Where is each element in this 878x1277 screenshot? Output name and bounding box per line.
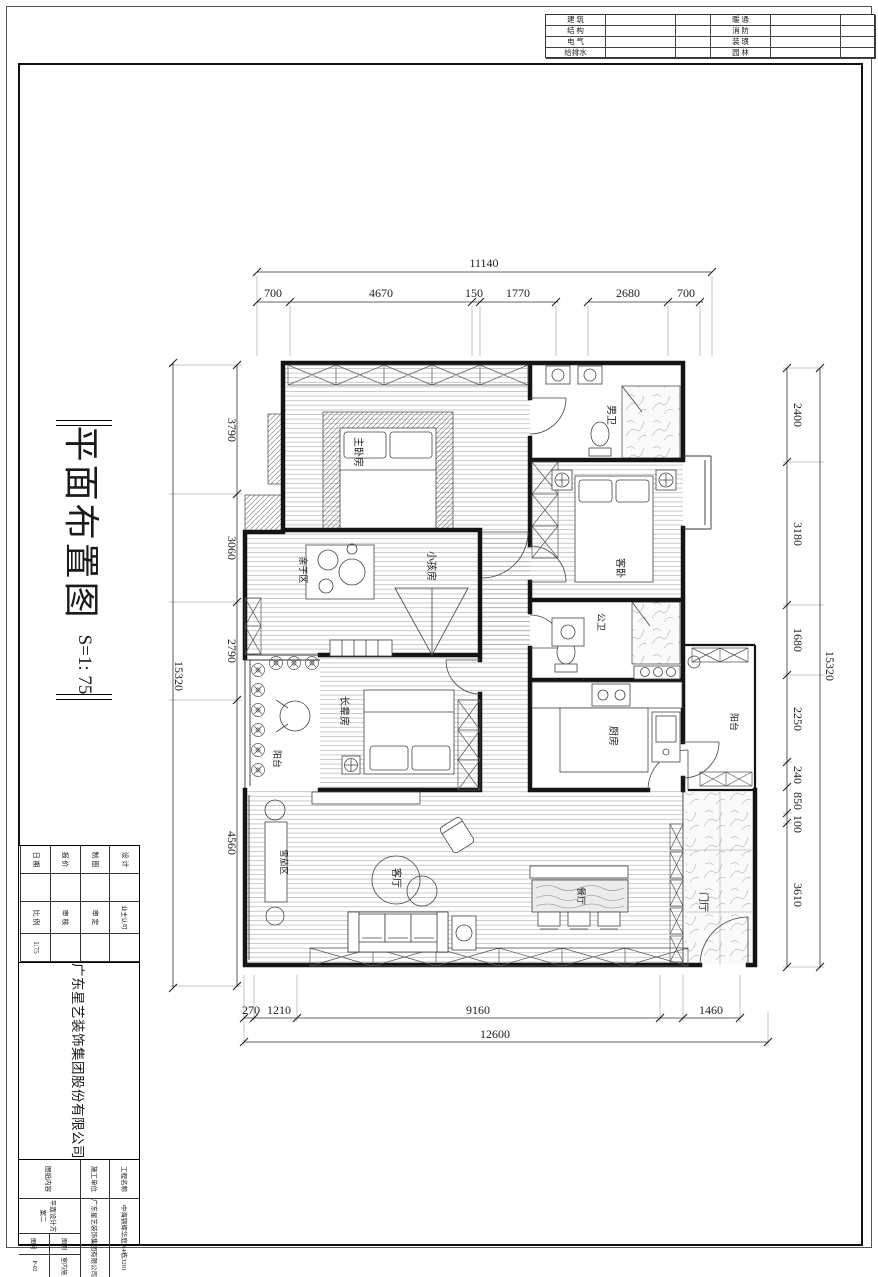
svg-text:2680: 2680 — [616, 286, 640, 300]
svg-text:1770: 1770 — [506, 286, 530, 300]
plants — [252, 657, 319, 777]
svg-text:2250: 2250 — [791, 707, 805, 731]
pillow — [412, 746, 450, 770]
svg-text:1680: 1680 — [791, 628, 805, 652]
svg-text:1460: 1460 — [699, 1003, 723, 1017]
floor-finishes — [245, 363, 755, 966]
toilet — [591, 422, 609, 446]
pillow — [616, 480, 649, 502]
sideboard — [530, 866, 628, 878]
svg-text:2790: 2790 — [225, 639, 239, 663]
svg-text:270: 270 — [242, 1003, 260, 1017]
chair — [598, 912, 620, 926]
island — [560, 708, 648, 772]
pillow — [344, 432, 386, 458]
pillow — [370, 746, 408, 770]
svg-text:3060: 3060 — [225, 536, 239, 560]
svg-text:3790: 3790 — [225, 418, 239, 442]
walls-medium — [683, 645, 755, 790]
svg-text:700: 700 — [677, 286, 695, 300]
svg-text:850: 850 — [791, 792, 805, 810]
svg-text:12600: 12600 — [480, 1027, 510, 1041]
washer — [552, 618, 584, 646]
play-table — [306, 545, 374, 599]
pillow — [579, 480, 612, 502]
room-label-dining: 餐厅 — [576, 887, 587, 905]
room-label-family: 亲子区 — [298, 556, 309, 583]
svg-text:4560: 4560 — [225, 831, 239, 855]
svg-text:15320: 15320 — [172, 661, 186, 691]
svg-text:1210: 1210 — [267, 1003, 291, 1017]
svg-text:100: 100 — [791, 815, 805, 833]
hatched-walls — [245, 412, 453, 532]
tv-cabinet — [312, 792, 420, 804]
pillow — [390, 432, 432, 458]
room-label-balcony-left: 阳台 — [272, 750, 283, 768]
room-label-balcony-right: 阳台 — [729, 713, 740, 731]
svg-text:700: 700 — [264, 286, 282, 300]
svg-text:150: 150 — [465, 286, 483, 300]
floor-plan: 11140 700 4670 150 1770 2680 700 15320 3… — [0, 0, 878, 1254]
svg-text:11140: 11140 — [469, 256, 498, 270]
room-label-elder: 长辈房 — [338, 696, 351, 726]
chair — [568, 912, 590, 926]
room-label-living: 客厅 — [390, 868, 403, 888]
shelf — [330, 640, 392, 656]
room-label-cigar: 雪茄区 — [279, 849, 289, 875]
svg-text:15320: 15320 — [823, 651, 837, 681]
room-label-men-bath: 男卫 — [605, 405, 617, 425]
room-label-foyer: 门厅 — [697, 892, 710, 912]
svg-text:3180: 3180 — [791, 522, 805, 546]
svg-text:3610: 3610 — [791, 883, 805, 907]
chair — [538, 912, 560, 926]
svg-text:4670: 4670 — [369, 286, 393, 300]
room-label-pub-bath: 公卫 — [596, 613, 606, 631]
room-label-guest: 客卧 — [614, 558, 627, 578]
room-label-kids: 小孩房 — [425, 551, 438, 581]
drawing-sheet: { "header_table": { "left_rows": ["建 筑",… — [0, 0, 878, 1254]
svg-text:2400: 2400 — [791, 403, 805, 427]
svg-text:9160: 9160 — [466, 1003, 490, 1017]
room-label-master: 主卧房 — [352, 437, 365, 467]
room-label-kitchen: 厨房 — [607, 726, 620, 746]
svg-text:240: 240 — [791, 766, 805, 784]
